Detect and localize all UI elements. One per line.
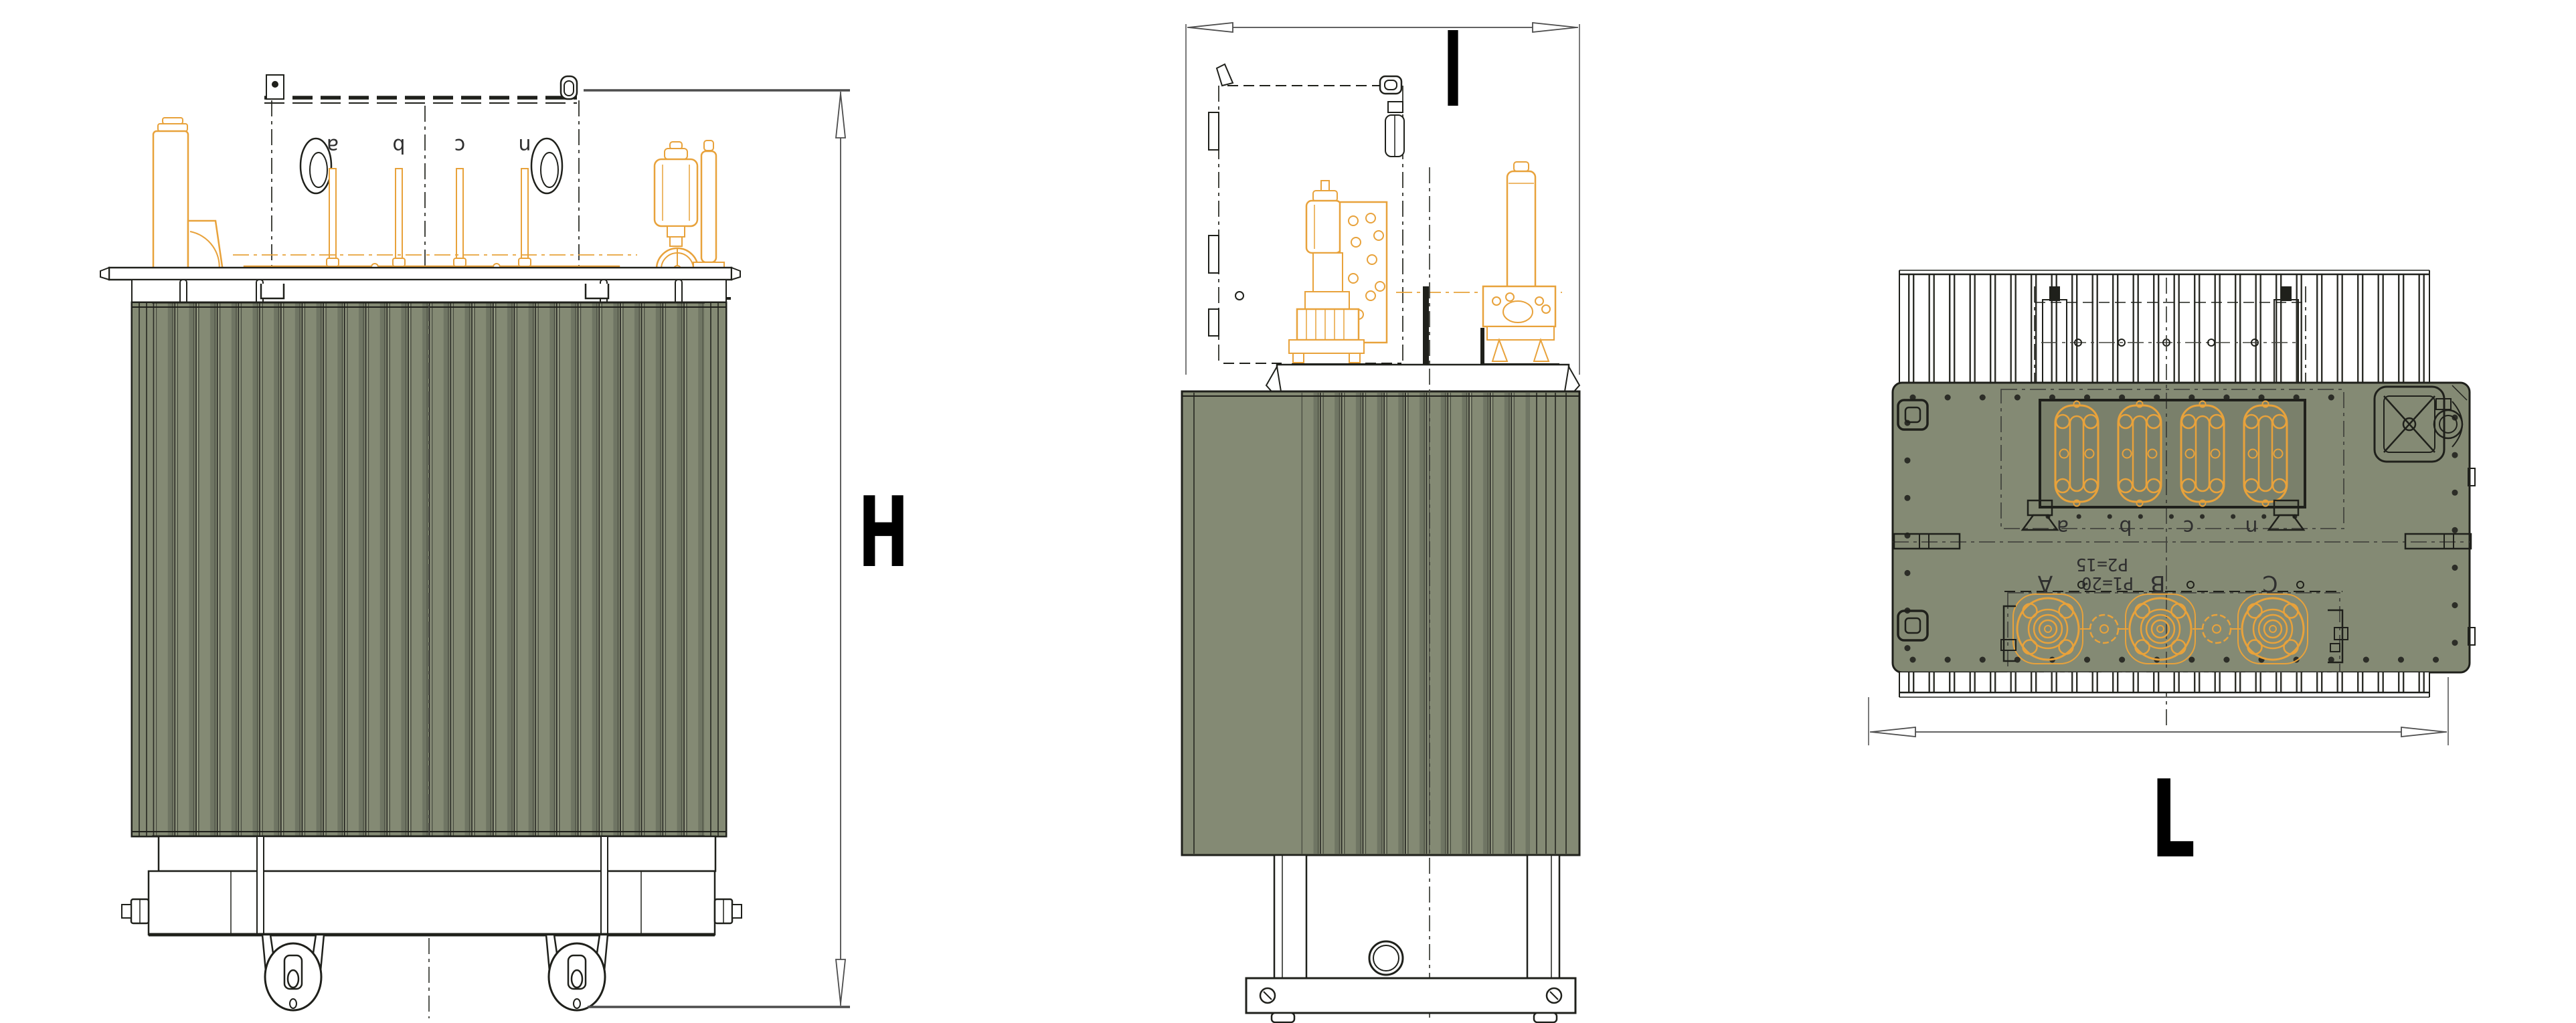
- top-tap-annotation-p1: P1=20: [2081, 573, 2134, 593]
- top-tap-annotation-p2: P2=15: [2076, 554, 2128, 574]
- side-corner-lug: [1217, 64, 1233, 86]
- side-undercarriage: [1246, 855, 1575, 1022]
- top-lv-label-a: a: [2057, 515, 2069, 539]
- top-fin-band-lower: [1899, 672, 2429, 697]
- side-view: I: [1182, 9, 1579, 1022]
- front-thermometer-pocket: [153, 118, 224, 276]
- side-bushing-rod: [1423, 286, 1429, 365]
- i-arrow-left: [1189, 23, 1233, 32]
- drawing-page: a b c n: [0, 0, 2576, 1023]
- side-drain-plug: [1369, 941, 1403, 975]
- h-arrow-up: [836, 94, 845, 138]
- h-dimension-label: H: [858, 476, 909, 589]
- front-jacking-bolt-left: [122, 899, 149, 923]
- top-hv-label-B: B: [2150, 571, 2166, 597]
- side-breather-tube: [1482, 162, 1559, 365]
- l-arrow-right: [2401, 727, 2445, 737]
- side-roller-left: [1272, 1013, 1294, 1022]
- front-roller-right: [546, 935, 608, 1010]
- top-hv-label-C: C: [2262, 571, 2278, 597]
- front-lid-hook: [561, 76, 577, 99]
- top-lv-label-c: c: [2183, 515, 2195, 539]
- top-fin-band-upper: [1899, 270, 2429, 383]
- front-lv-label-n: n: [518, 134, 531, 157]
- side-base-beam: [1246, 978, 1575, 1013]
- side-bushing-pin: [1480, 328, 1484, 365]
- front-lv-label-c: c: [454, 134, 466, 157]
- front-jacking-bolt-right: [715, 899, 742, 923]
- front-view: a b c n: [100, 75, 909, 1018]
- front-lv-label-a: a: [327, 134, 339, 157]
- top-lv-label-n: n: [2245, 515, 2257, 539]
- top-lv-label-b: b: [2119, 515, 2132, 539]
- side-roller-right: [1534, 1013, 1557, 1022]
- h-arrow-down: [836, 959, 845, 1004]
- front-roller-left: [262, 935, 324, 1010]
- l-arrow-left: [1871, 727, 1915, 737]
- top-hv-label-A: A: [2037, 571, 2053, 597]
- front-lv-bushing-rods: a b c n: [327, 134, 531, 266]
- front-lifting-lug: [266, 75, 284, 99]
- dimension-length: L: [1869, 677, 2448, 882]
- i-dimension-label: I: [1438, 9, 1468, 130]
- front-lv-label-b: b: [392, 134, 405, 157]
- top-view: a b c n A B C P2=15 P1=20: [1869, 270, 2475, 882]
- front-undercarriage: [122, 836, 742, 1010]
- i-arrow-right: [1533, 23, 1577, 32]
- l-dimension-label: L: [2151, 757, 2195, 882]
- side-door-hinge: [1380, 76, 1404, 157]
- transformer-three-view-drawing: a b c n: [0, 0, 2576, 1023]
